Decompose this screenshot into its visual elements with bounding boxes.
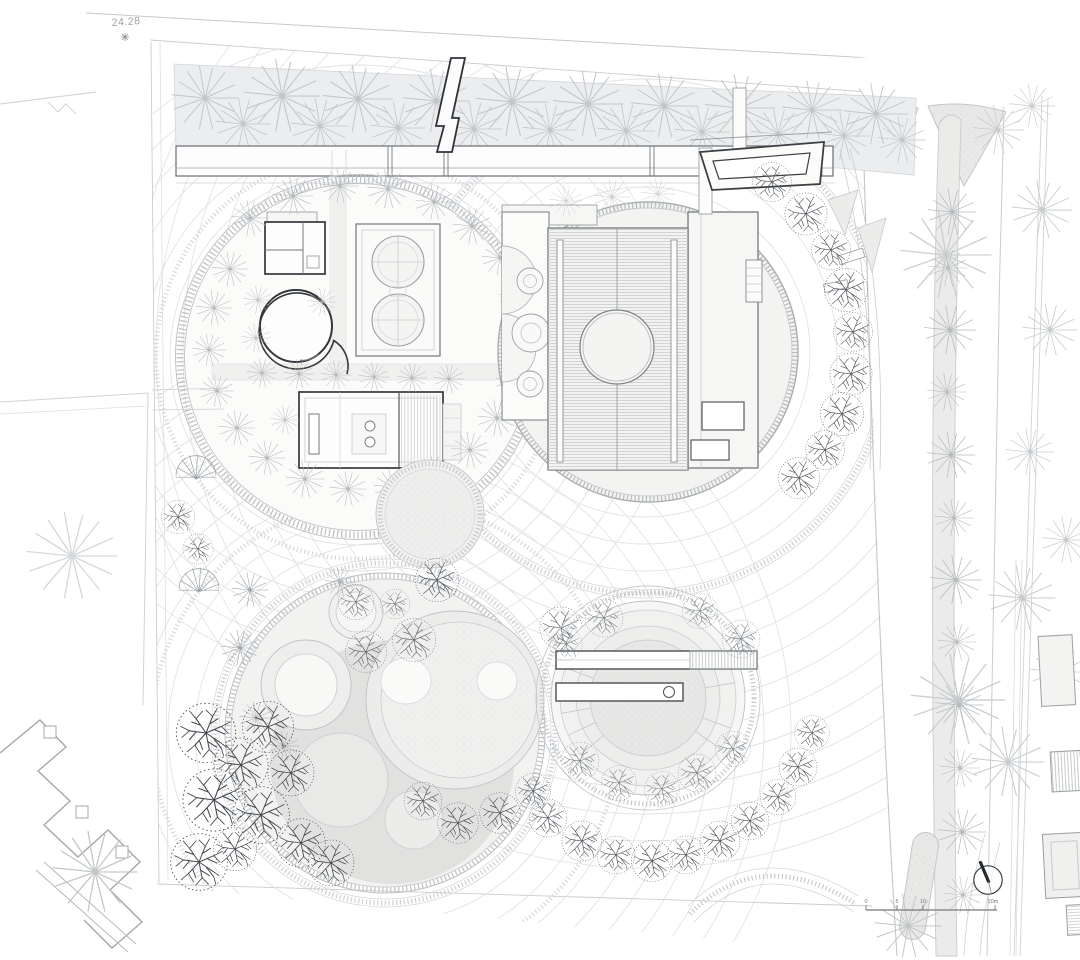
- upper-left-garden-circle: [152, 150, 541, 540]
- survey-point-icon: [121, 33, 129, 41]
- context-left-parcels: [0, 92, 148, 952]
- scale-label-0: 0: [864, 899, 867, 905]
- south-pavilion: [299, 392, 461, 468]
- skylight-slot: [671, 240, 677, 462]
- corner-mark: [48, 102, 76, 114]
- east-wing: [688, 212, 762, 468]
- neighbor-building-outline: [0, 720, 142, 948]
- scale-label-2: 10: [920, 899, 926, 905]
- central-lawn-circle: [376, 460, 484, 568]
- site-plan-canvas: 24.28 0 5 10 20m: [0, 0, 1080, 960]
- scale-label-3: 20m: [988, 899, 999, 905]
- site-plan-drawing: 24.28 0 5 10 20m: [0, 0, 1080, 960]
- elevation-annotation: 24.28: [111, 15, 141, 41]
- elevation-label: 24.28: [111, 15, 141, 29]
- west-boundary-planting: [161, 455, 245, 891]
- road-east: [858, 40, 1080, 960]
- playground-circle: [213, 568, 550, 894]
- skylight-slot: [557, 240, 563, 462]
- nw-pavilion: [265, 212, 325, 274]
- roof-oculus: [580, 310, 654, 384]
- pool-plant-building: [356, 224, 440, 356]
- main-hall-roof: [548, 228, 688, 470]
- scale-label-1: 5: [895, 899, 898, 905]
